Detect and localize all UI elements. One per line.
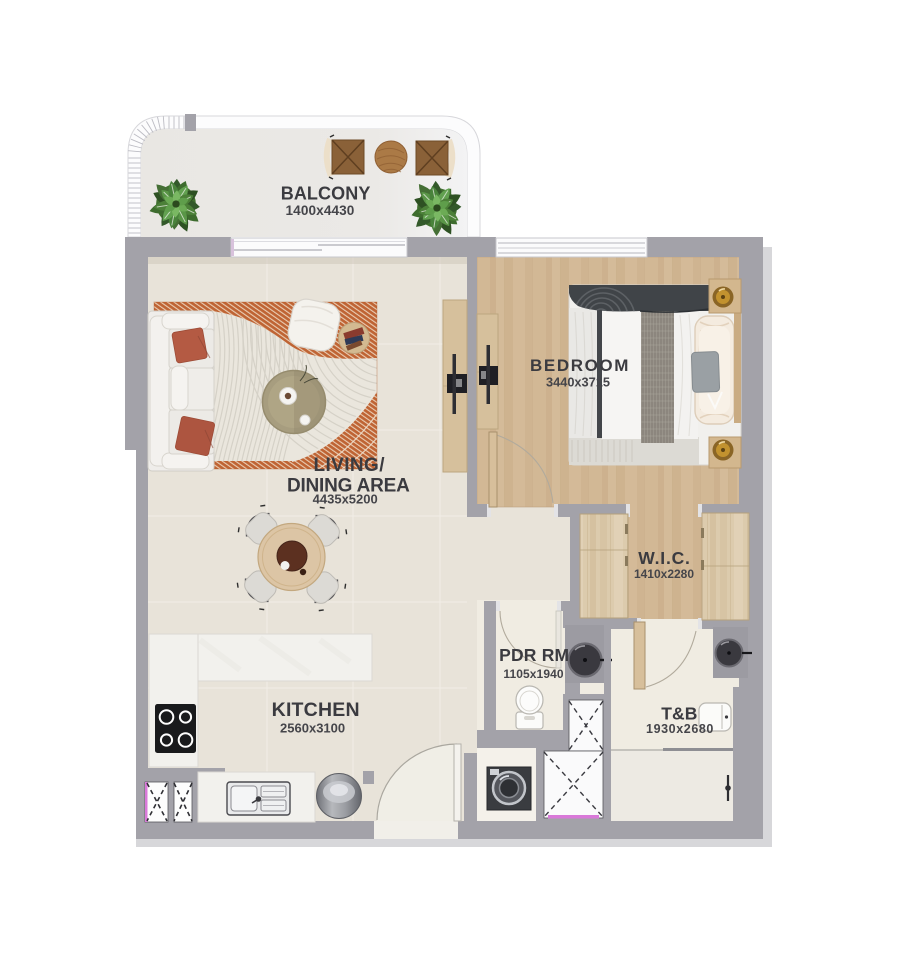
svg-text:T&B: T&B <box>661 704 697 724</box>
svg-text:LIVING/: LIVING/ <box>313 455 385 476</box>
svg-text:KITCHEN: KITCHEN <box>272 699 360 721</box>
svg-text:1105x1940: 1105x1940 <box>503 667 564 681</box>
svg-text:PDR RM: PDR RM <box>499 645 569 665</box>
svg-text:1930x2680: 1930x2680 <box>646 722 714 736</box>
svg-text:2560x3100: 2560x3100 <box>280 721 345 736</box>
svg-text:1400x4430: 1400x4430 <box>286 203 355 218</box>
svg-text:4435x5200: 4435x5200 <box>313 492 378 507</box>
svg-text:BEDROOM: BEDROOM <box>530 356 630 375</box>
svg-text:W.I.C.: W.I.C. <box>638 548 690 568</box>
svg-text:BALCONY: BALCONY <box>281 184 371 204</box>
svg-text:3440x3715: 3440x3715 <box>546 375 610 390</box>
svg-text:1410x2280: 1410x2280 <box>634 567 694 581</box>
